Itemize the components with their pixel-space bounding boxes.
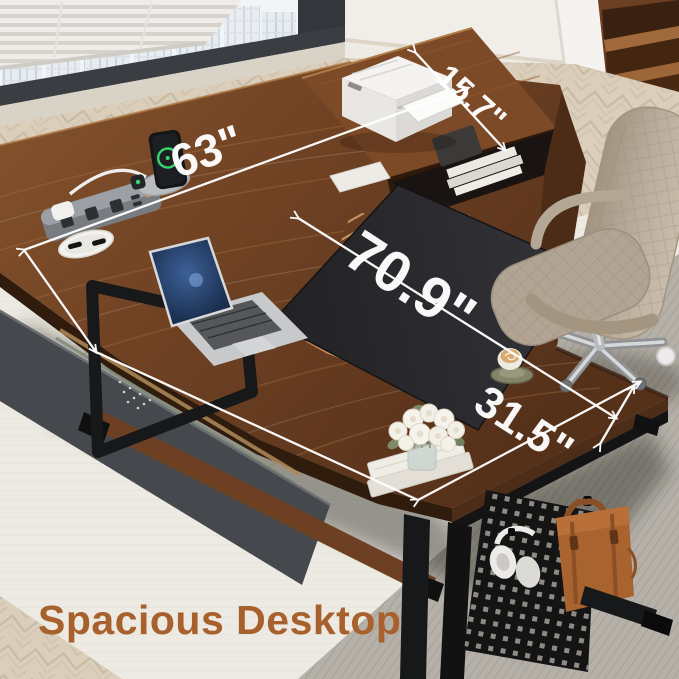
caption-spacious-desktop: Spacious Desktop [38, 597, 401, 644]
scene-canvas: 63" 15.7" 70.9" 31.5" [0, 0, 679, 679]
chair-caster [657, 347, 675, 365]
desk-leg-front [400, 514, 430, 679]
pegboard-hook [508, 528, 515, 536]
product-photo-scene: 63" 15.7" 70.9" 31.5" Spacious Desktop [0, 0, 679, 679]
